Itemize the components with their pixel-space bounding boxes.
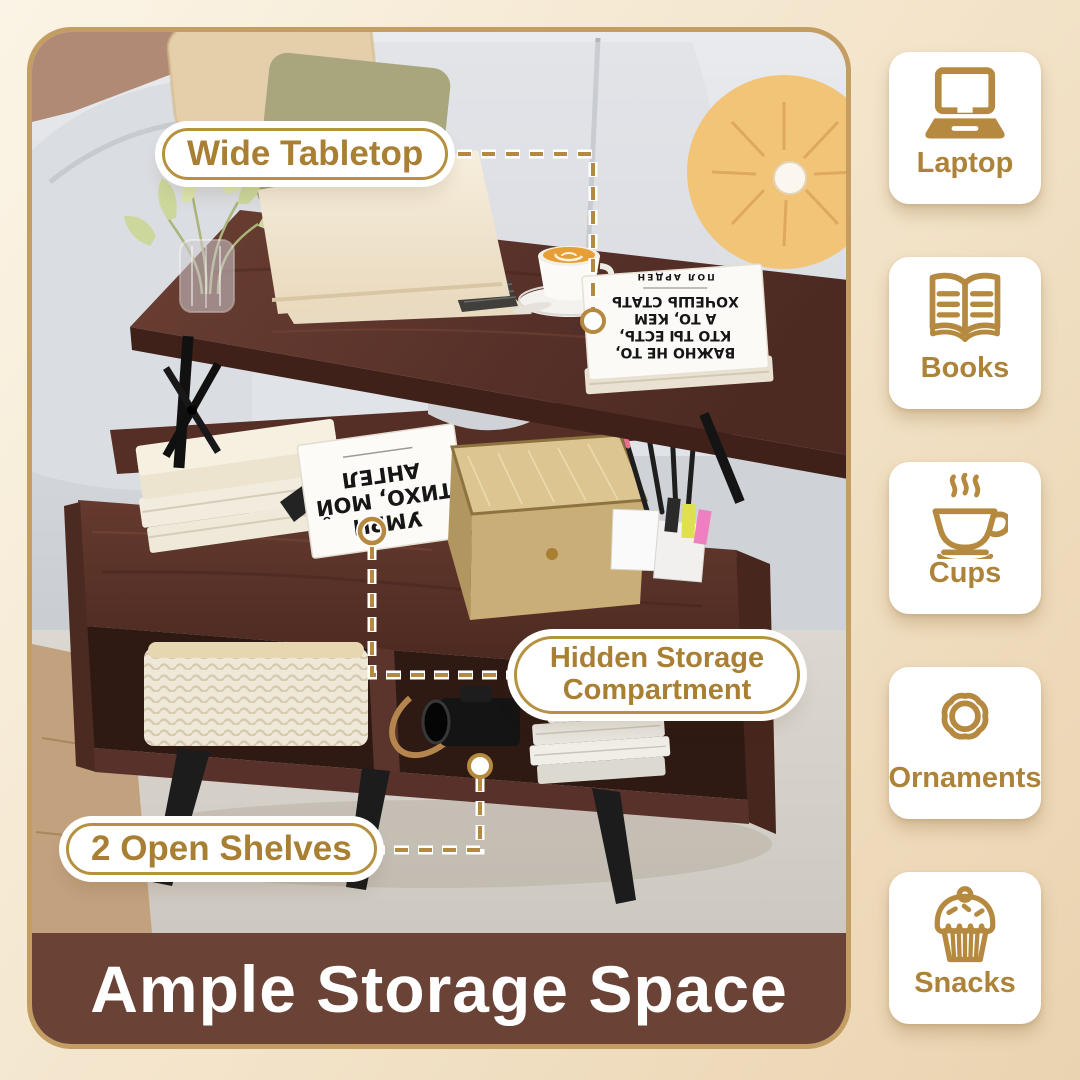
callout-wide-tabletop: Wide Tabletop bbox=[162, 128, 448, 180]
tabletop-book-line: КТО ТЫ ЕСТЬ, bbox=[619, 327, 731, 343]
yellow-highlighter bbox=[681, 504, 695, 538]
sidebar-card-label: Cups bbox=[929, 557, 1002, 590]
callout-wide-tabletop-label: Wide Tabletop bbox=[187, 134, 423, 174]
connector-dot bbox=[469, 755, 491, 777]
page: { "banner": { "title": "Ample Storage Sp… bbox=[0, 0, 1080, 1080]
banner-title: Ample Storage Space bbox=[90, 951, 788, 1027]
tabletop-book-author: ПОЛ АРДЕН bbox=[636, 271, 715, 281]
cupcake-icon bbox=[922, 883, 1008, 969]
tabletop-book-line: А ТО, КЕМ bbox=[634, 310, 716, 326]
product-photo-frame: УМРИ ТИХО, МОЙ АНГЕЛ bbox=[27, 27, 851, 1049]
tabletop-book-line: ВАЖНО НЕ ТО, bbox=[615, 344, 735, 360]
sidebar-card-label: Ornaments bbox=[888, 762, 1041, 795]
sidebar-card-cups: Cups bbox=[889, 462, 1041, 614]
banner: Ample Storage Space bbox=[32, 933, 846, 1044]
tabletop-book-line: ХОЧЕШЬ СТАТЬ bbox=[612, 293, 739, 309]
sidebar-card-label: Snacks bbox=[914, 967, 1016, 1000]
sidebar-card-laptop: Laptop bbox=[889, 52, 1041, 204]
sidebar-card-label: Laptop bbox=[917, 147, 1014, 180]
connector-dot bbox=[582, 310, 604, 332]
callout-hidden-storage-line2: Compartment bbox=[563, 675, 752, 707]
book-icon bbox=[922, 268, 1008, 354]
callout-open-shelves: 2 Open Shelves bbox=[66, 823, 377, 875]
callout-hidden-storage-line1: Hidden Storage bbox=[550, 643, 764, 675]
ornament-icon bbox=[922, 678, 1008, 764]
woven-basket bbox=[144, 642, 368, 746]
laptop-icon bbox=[922, 63, 1008, 149]
cup-icon bbox=[922, 473, 1008, 559]
books-on-table: ВАЖНО НЕ ТО, КТО ТЫ ЕСТЬ, А ТО, КЕМ ХОЧЕ… bbox=[578, 260, 774, 394]
sidebar-card-label: Books bbox=[921, 352, 1010, 385]
sidebar-card-books: Books bbox=[889, 257, 1041, 409]
callout-open-shelves-label: 2 Open Shelves bbox=[91, 829, 352, 869]
callout-hidden-storage: Hidden Storage Compartment bbox=[514, 636, 800, 714]
sidebar-card-ornaments: Ornaments bbox=[889, 667, 1041, 819]
sidebar-card-snacks: Snacks bbox=[889, 872, 1041, 1024]
box-knob bbox=[546, 548, 558, 560]
